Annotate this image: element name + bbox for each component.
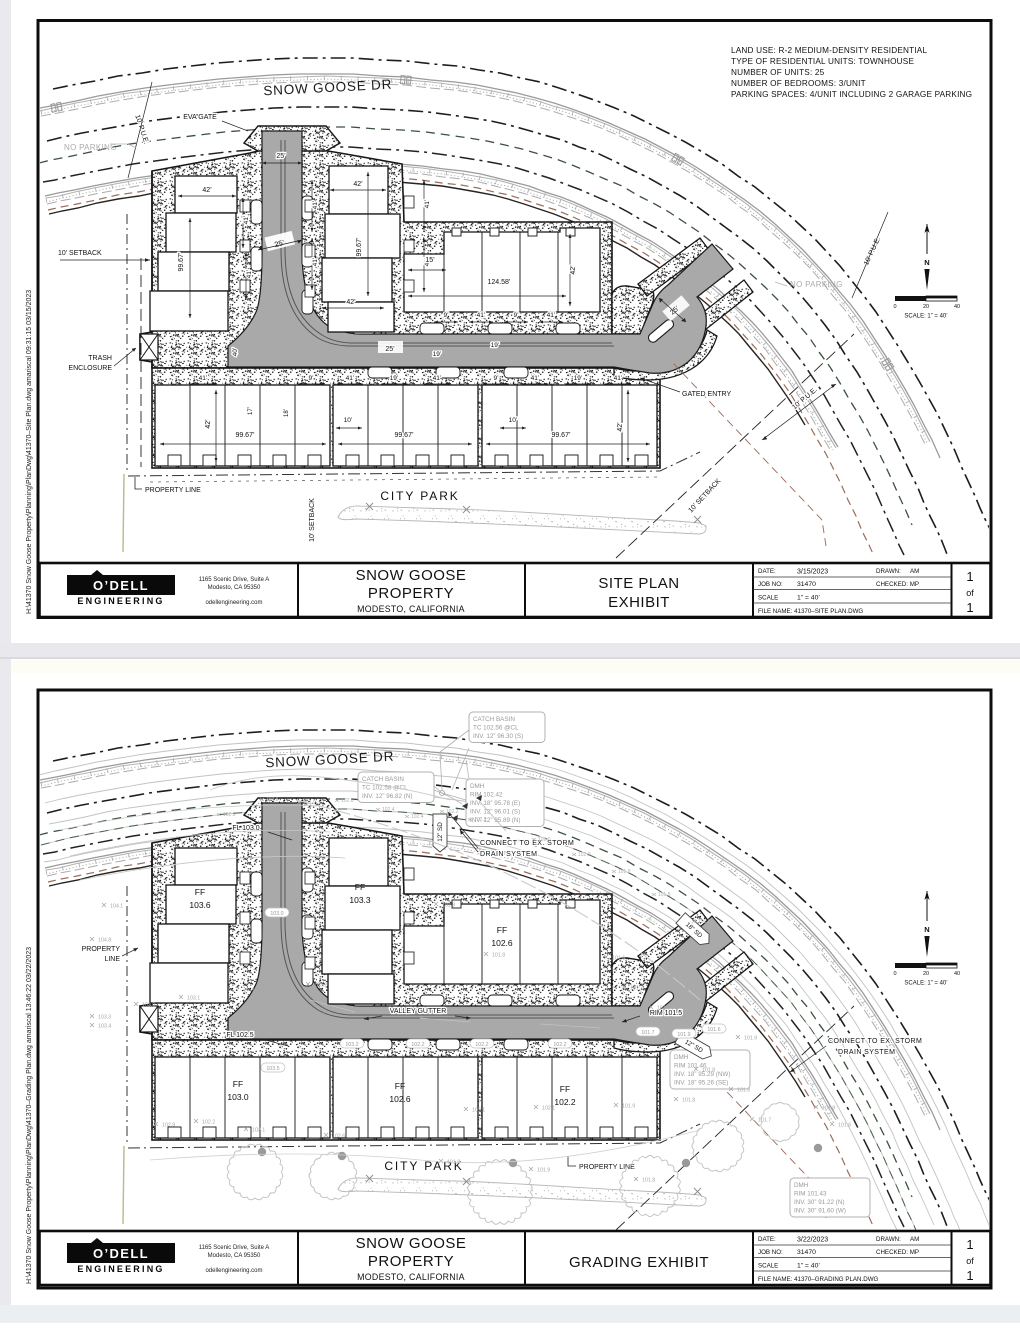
svg-text:PROPERTY LINE: PROPERTY LINE bbox=[145, 487, 201, 494]
svg-text:DATE:: DATE: bbox=[758, 568, 776, 575]
svg-text:102.2: 102.2 bbox=[411, 1042, 424, 1048]
svg-text:FF: FF bbox=[395, 1081, 405, 1091]
svg-text:101.9: 101.9 bbox=[744, 1036, 757, 1042]
svg-text:PROPERTY: PROPERTY bbox=[82, 946, 121, 953]
svg-text:102.4: 102.4 bbox=[382, 807, 395, 813]
svg-text:CHECKED: MP: CHECKED: MP bbox=[876, 581, 919, 588]
svg-text:102.1: 102.1 bbox=[472, 1108, 485, 1114]
svg-text:40: 40 bbox=[954, 304, 960, 310]
svg-text:101.6: 101.6 bbox=[838, 1123, 851, 1129]
svg-text:FF: FF bbox=[233, 1079, 243, 1089]
svg-text:103.0: 103.0 bbox=[252, 988, 265, 994]
svg-text:102.6: 102.6 bbox=[341, 798, 354, 804]
svg-text:103.2: 103.2 bbox=[345, 1042, 358, 1048]
svg-text:102.1: 102.1 bbox=[542, 1106, 555, 1112]
svg-text:17’: 17’ bbox=[248, 407, 254, 415]
svg-text:SCALE: SCALE bbox=[758, 595, 778, 602]
svg-text:1: 1 bbox=[966, 1237, 973, 1252]
svg-text:19’: 19’ bbox=[433, 351, 442, 358]
svg-text:H:\41370 Snow Goose Propert: H:\41370 Snow Goose Property\Planning\Pl… bbox=[26, 290, 33, 614]
svg-text:DMH: DMH bbox=[674, 1054, 689, 1061]
svg-text:25’: 25’ bbox=[276, 153, 286, 160]
svg-text:102.8: 102.8 bbox=[266, 797, 279, 803]
svg-text:9’: 9’ bbox=[443, 312, 449, 319]
svg-text:101.8: 101.8 bbox=[442, 903, 455, 909]
svg-text:101.7: 101.7 bbox=[630, 986, 643, 992]
svg-text:0: 0 bbox=[893, 304, 896, 310]
svg-text:RIM 101.43: RIM 101.43 bbox=[794, 1191, 827, 1198]
svg-text:41’: 41’ bbox=[199, 375, 208, 382]
svg-text:42’: 42’ bbox=[346, 299, 356, 306]
svg-text:20: 20 bbox=[923, 971, 929, 977]
svg-text:41’: 41’ bbox=[346, 375, 355, 382]
svg-text:15’: 15’ bbox=[425, 257, 435, 264]
svg-text:19’: 19’ bbox=[390, 375, 399, 382]
svg-text:TRASH: TRASH bbox=[88, 355, 112, 362]
svg-text:O’DELL: O’DELL bbox=[93, 1246, 149, 1261]
svg-text:103.3: 103.3 bbox=[98, 1015, 111, 1021]
svg-text:99.67’: 99.67’ bbox=[356, 237, 363, 257]
svg-text:1: 1 bbox=[966, 1268, 973, 1283]
svg-text:SCALE: SCALE bbox=[758, 1263, 778, 1270]
svg-text:103.0: 103.0 bbox=[227, 1092, 249, 1102]
svg-text:AM: AM bbox=[910, 1236, 919, 1243]
svg-text:101.8: 101.8 bbox=[492, 953, 505, 959]
svg-text:41’: 41’ bbox=[312, 257, 319, 266]
svg-text:NO PARKING: NO PARKING bbox=[64, 143, 117, 152]
svg-text:NUMBER OF BEDROOMS: 3/UNIT: NUMBER OF BEDROOMS: 3/UNIT bbox=[731, 79, 866, 88]
svg-text:10’: 10’ bbox=[509, 417, 518, 424]
svg-text:FF: FF bbox=[195, 887, 205, 897]
svg-text:DRAWN:: DRAWN: bbox=[876, 1236, 901, 1243]
svg-text:41’: 41’ bbox=[312, 200, 319, 209]
svg-text:103.0: 103.0 bbox=[270, 911, 283, 917]
svg-text:GRADING EXHIBIT: GRADING EXHIBIT bbox=[569, 1254, 709, 1271]
svg-text:25’: 25’ bbox=[385, 346, 395, 353]
svg-text:INV. 30” 91.60 (W): INV. 30” 91.60 (W) bbox=[794, 1208, 846, 1215]
svg-text:124.58’: 124.58’ bbox=[488, 279, 511, 286]
svg-text:102.4: 102.4 bbox=[411, 814, 424, 820]
svg-text:N: N bbox=[924, 925, 929, 934]
svg-text:H:\41370 Snow Goose Propert: H:\41370 Snow Goose Property\Planning\Pl… bbox=[26, 947, 33, 1284]
svg-text:104.8: 104.8 bbox=[98, 938, 111, 944]
svg-text:JOB NO:: JOB NO: bbox=[758, 1249, 783, 1256]
svg-text:103.1: 103.1 bbox=[187, 996, 200, 1002]
svg-text:102.9: 102.9 bbox=[162, 1123, 175, 1129]
svg-text:FILE NAME: 41370–SITE PLAN.DWG: FILE NAME: 41370–SITE PLAN.DWG bbox=[758, 608, 863, 615]
svg-text:42’: 42’ bbox=[205, 419, 212, 429]
svg-text:101.8: 101.8 bbox=[702, 1068, 715, 1074]
svg-text:FILE NAME: 41370–GRADING PLAN.: FILE NAME: 41370–GRADING PLAN.DWG bbox=[758, 1276, 879, 1283]
svg-text:101.6: 101.6 bbox=[612, 956, 625, 962]
svg-text:SITE PLAN: SITE PLAN bbox=[598, 575, 679, 592]
svg-text:FF: FF bbox=[560, 1084, 570, 1094]
svg-text:9’: 9’ bbox=[308, 375, 314, 382]
svg-text:3/15/2023: 3/15/2023 bbox=[797, 569, 828, 576]
svg-text:PROPERTY LINE: PROPERTY LINE bbox=[579, 1164, 635, 1171]
svg-text:101.7: 101.7 bbox=[657, 1006, 670, 1012]
svg-text:101.7: 101.7 bbox=[641, 1030, 654, 1036]
svg-text:102.6: 102.6 bbox=[491, 938, 513, 948]
svg-text:42’: 42’ bbox=[353, 181, 363, 188]
svg-text:DMH: DMH bbox=[470, 783, 485, 790]
svg-text:DATE:: DATE: bbox=[758, 1236, 776, 1243]
svg-text:102.1: 102.1 bbox=[252, 1128, 265, 1134]
svg-text:0: 0 bbox=[893, 971, 896, 977]
svg-text:41’: 41’ bbox=[246, 269, 253, 278]
svg-text:NUMBER OF UNITS: 25: NUMBER OF UNITS: 25 bbox=[731, 68, 825, 77]
svg-text:102.6: 102.6 bbox=[389, 1094, 411, 1104]
svg-text:101.8: 101.8 bbox=[642, 1178, 655, 1184]
svg-text:102.2: 102.2 bbox=[553, 1042, 566, 1048]
svg-text:99.67’: 99.67’ bbox=[551, 432, 571, 439]
svg-text:102.2: 102.2 bbox=[202, 1120, 215, 1126]
svg-text:103.4: 103.4 bbox=[98, 1024, 111, 1030]
svg-text:RIM 102.42: RIM 102.42 bbox=[470, 792, 503, 799]
svg-text:31470: 31470 bbox=[797, 1249, 816, 1256]
svg-text:101.8: 101.8 bbox=[618, 869, 631, 875]
svg-text:1” = 40’: 1” = 40’ bbox=[797, 595, 820, 602]
svg-text:41’: 41’ bbox=[424, 199, 431, 208]
svg-text:odellengineering.com: odellengineering.com bbox=[205, 600, 262, 606]
svg-text:FF: FF bbox=[355, 882, 365, 892]
svg-text:DRAIN SYSTEM: DRAIN SYSTEM bbox=[838, 1049, 895, 1056]
svg-text:SNOW GOOSE: SNOW GOOSE bbox=[356, 567, 467, 584]
svg-text:DMH: DMH bbox=[794, 1182, 809, 1189]
svg-text:of: of bbox=[966, 588, 974, 598]
svg-text:104.1: 104.1 bbox=[110, 904, 123, 910]
svg-text:19’: 19’ bbox=[491, 342, 500, 349]
svg-text:10’ SETBACK: 10’ SETBACK bbox=[58, 250, 102, 257]
svg-text:FL 102.5: FL 102.5 bbox=[226, 1032, 253, 1039]
svg-text:10’ SETBACK: 10’ SETBACK bbox=[309, 498, 316, 542]
svg-text:ENGINEERING: ENGINEERING bbox=[77, 1264, 164, 1274]
svg-text:PROPERTY: PROPERTY bbox=[368, 1253, 454, 1270]
svg-text:SCALE: 1” = 40’: SCALE: 1” = 40’ bbox=[904, 981, 947, 987]
svg-text:41’: 41’ bbox=[531, 375, 540, 382]
svg-text:LINE: LINE bbox=[104, 956, 120, 963]
svg-text:INV. 12” 96.30 (S): INV. 12” 96.30 (S) bbox=[473, 733, 523, 740]
svg-text:ENCLOSURE: ENCLOSURE bbox=[68, 365, 112, 372]
svg-text:MODESTO, CALIFORNIA: MODESTO, CALIFORNIA bbox=[357, 604, 465, 614]
svg-text:PROPERTY: PROPERTY bbox=[368, 585, 454, 602]
svg-text:INV. 18” 95.26 (SE): INV. 18” 95.26 (SE) bbox=[674, 1080, 728, 1087]
svg-text:41’: 41’ bbox=[547, 312, 556, 319]
svg-text:odellengineering.com: odellengineering.com bbox=[205, 1268, 262, 1274]
svg-text:O’DELL: O’DELL bbox=[93, 578, 149, 593]
svg-text:102.9: 102.9 bbox=[223, 812, 236, 818]
svg-text:1165 Scenic Drive, Suite A: 1165 Scenic Drive, Suite A bbox=[199, 577, 270, 583]
svg-text:AM: AM bbox=[910, 568, 919, 575]
svg-text:EVA GATE: EVA GATE bbox=[183, 114, 217, 121]
svg-text:101.6: 101.6 bbox=[698, 919, 711, 925]
svg-text:20: 20 bbox=[923, 304, 929, 310]
svg-text:102.0: 102.0 bbox=[538, 837, 551, 843]
svg-text:NO PARKING: NO PARKING bbox=[790, 280, 843, 289]
svg-text:41’: 41’ bbox=[614, 375, 623, 382]
svg-text:103.3: 103.3 bbox=[349, 895, 371, 905]
svg-text:103.6: 103.6 bbox=[189, 900, 211, 910]
svg-text:102.2: 102.2 bbox=[446, 809, 459, 815]
svg-text:Modesto, CA 95350: Modesto, CA 95350 bbox=[208, 1253, 261, 1259]
svg-text:INV. 30” 91.22 (N): INV. 30” 91.22 (N) bbox=[794, 1199, 845, 1206]
svg-text:99.67’: 99.67’ bbox=[394, 432, 414, 439]
svg-text:101.9: 101.9 bbox=[677, 1032, 690, 1038]
svg-text:102.2: 102.2 bbox=[474, 817, 487, 823]
svg-text:12” SD: 12” SD bbox=[437, 822, 444, 842]
svg-text:TC 102.56 @CL: TC 102.56 @CL bbox=[473, 725, 519, 732]
svg-text:CHECKED: MP: CHECKED: MP bbox=[876, 1249, 919, 1256]
svg-text:CONNECT TO EX. STORM: CONNECT TO EX. STORM bbox=[828, 1038, 922, 1045]
svg-text:VALLEY GUTTER: VALLEY GUTTER bbox=[390, 1008, 447, 1015]
svg-text:103.0: 103.0 bbox=[142, 1003, 155, 1009]
svg-text:40: 40 bbox=[954, 971, 960, 977]
svg-text:SNOW GOOSE: SNOW GOOSE bbox=[356, 1235, 467, 1252]
svg-text:1” = 40’: 1” = 40’ bbox=[797, 1263, 820, 1270]
svg-text:N: N bbox=[924, 258, 929, 267]
svg-text:101.8: 101.8 bbox=[737, 1088, 750, 1094]
svg-text:18’: 18’ bbox=[284, 409, 290, 417]
svg-text:9’: 9’ bbox=[493, 375, 499, 382]
svg-text:41’: 41’ bbox=[477, 312, 486, 319]
svg-text:CITY PARK: CITY PARK bbox=[380, 489, 459, 503]
svg-text:102.0: 102.0 bbox=[578, 852, 591, 858]
svg-text:31470: 31470 bbox=[797, 581, 816, 588]
svg-text:1: 1 bbox=[966, 569, 973, 584]
svg-text:40’: 40’ bbox=[232, 347, 239, 356]
svg-text:SCALE: 1” = 40’: SCALE: 1” = 40’ bbox=[904, 314, 947, 320]
svg-text:FF: FF bbox=[497, 925, 507, 935]
svg-text:41’: 41’ bbox=[433, 375, 442, 382]
svg-text:101.7: 101.7 bbox=[758, 1118, 771, 1124]
svg-text:Modesto, CA 95350: Modesto, CA 95350 bbox=[208, 585, 261, 591]
svg-text:42’: 42’ bbox=[202, 187, 212, 194]
svg-text:19’: 19’ bbox=[574, 375, 583, 382]
svg-text:101.6: 101.6 bbox=[707, 1027, 720, 1033]
svg-text:DRAIN SYSTEM: DRAIN SYSTEM bbox=[480, 851, 537, 858]
svg-text:101.8: 101.8 bbox=[822, 1106, 835, 1112]
svg-text:INV. 12” 96.82 (N): INV. 12” 96.82 (N) bbox=[362, 793, 413, 800]
svg-text:101.8: 101.8 bbox=[682, 1098, 695, 1104]
svg-text:101.9: 101.9 bbox=[622, 1104, 635, 1110]
svg-text:of: of bbox=[966, 1256, 974, 1266]
svg-text:ENGINEERING: ENGINEERING bbox=[77, 596, 164, 606]
svg-text:102.2: 102.2 bbox=[475, 1042, 488, 1048]
svg-text:103.5: 103.5 bbox=[266, 1066, 279, 1072]
svg-text:CONNECT TO EX. STORM: CONNECT TO EX. STORM bbox=[480, 840, 574, 847]
svg-text:CATCH BASIN: CATCH BASIN bbox=[362, 776, 404, 783]
svg-text:1: 1 bbox=[966, 600, 973, 615]
svg-text:102.2: 102.2 bbox=[554, 1097, 576, 1107]
svg-text:41’: 41’ bbox=[243, 215, 250, 224]
svg-text:CATCH BASIN: CATCH BASIN bbox=[473, 716, 515, 723]
svg-text:DRAWN:: DRAWN: bbox=[876, 568, 901, 575]
svg-text:INV. 12” 96.01 (S): INV. 12” 96.01 (S) bbox=[470, 809, 520, 816]
svg-text:JOB NO:: JOB NO: bbox=[758, 581, 783, 588]
svg-text:GATED ENTRY: GATED ENTRY bbox=[682, 391, 731, 398]
svg-text:42’: 42’ bbox=[570, 265, 577, 275]
svg-text:1165 Scenic Drive, Suite A: 1165 Scenic Drive, Suite A bbox=[199, 1245, 270, 1251]
svg-text:99.67’: 99.67’ bbox=[178, 252, 185, 272]
svg-text:MODESTO, CALIFORNIA: MODESTO, CALIFORNIA bbox=[357, 1272, 465, 1282]
svg-text:103.2: 103.2 bbox=[314, 983, 327, 989]
svg-text:INV. 18” 95.78 (E): INV. 18” 95.78 (E) bbox=[470, 800, 520, 807]
svg-text:3/22/2023: 3/22/2023 bbox=[797, 1237, 828, 1244]
svg-text:TYPE OF RESIDENTIAL UNITS: TOW: TYPE OF RESIDENTIAL UNITS: TOWNHOUSE bbox=[731, 57, 914, 66]
svg-text:EXHIBIT: EXHIBIT bbox=[608, 594, 670, 611]
svg-text:9’: 9’ bbox=[513, 312, 519, 319]
svg-text:101.8: 101.8 bbox=[658, 892, 671, 898]
svg-text:99.67’: 99.67’ bbox=[235, 432, 255, 439]
svg-text:10’: 10’ bbox=[344, 417, 353, 424]
svg-text:42’: 42’ bbox=[617, 422, 624, 432]
svg-text:101.9: 101.9 bbox=[537, 1168, 550, 1174]
svg-text:102.6: 102.6 bbox=[332, 1134, 345, 1140]
svg-text:PARKING SPACES: 4/UNIT INCLUDI: PARKING SPACES: 4/UNIT INCLUDING 2 GARAG… bbox=[731, 90, 972, 99]
svg-text:LAND USE: R-2 MEDIUM-DENSITY R: LAND USE: R-2 MEDIUM-DENSITY RESIDENTIAL bbox=[731, 46, 927, 55]
